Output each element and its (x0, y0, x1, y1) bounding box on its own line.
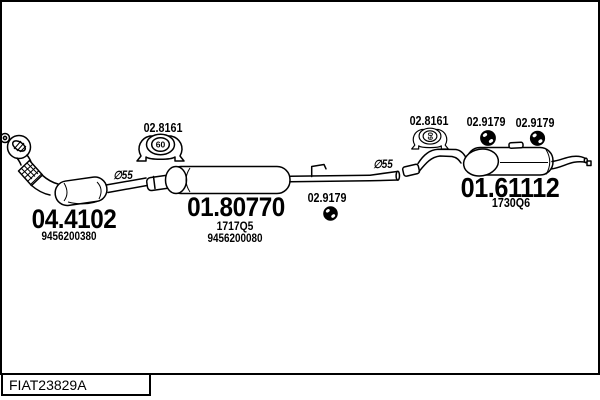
flex-pipe-icon (19, 161, 43, 186)
clamp-right-icon: 60 (412, 128, 449, 149)
hanger-mid-icon (323, 206, 338, 221)
front-pipe-oe-label: 9456200380 (41, 232, 96, 244)
mid-muffler-oe-label: 9456200080 (207, 234, 262, 246)
rear-pipe-diameter-label: ∅55 (373, 160, 393, 172)
hanger-rod-icon (312, 165, 326, 177)
mid-muffler-variant-label: 1717Q5 (217, 220, 254, 232)
muffler-bracket-icon (509, 142, 523, 148)
hanger-rear-front-icon (480, 130, 496, 146)
mid-muffler-part-label: 01.80770 (187, 194, 285, 221)
clamp-right-size-label: 60 (428, 132, 435, 140)
drawing-code-label: FIAT23829A (9, 378, 87, 392)
drawing-code-box: FIAT23829A (1, 373, 151, 396)
rear-inlet-sleeve-icon (402, 164, 420, 177)
exhaust-diagram-stage: 60 60 02.8161 ∅55 04.4102 9456200380 (0, 0, 600, 400)
hanger-rear-front-part-label: 02.9179 (467, 116, 506, 129)
flange-bolt-icon (1, 134, 10, 143)
mid-muffler-drawing (166, 167, 291, 194)
front-pipe-diameter-label: ∅55 (113, 171, 133, 183)
hanger-rear-back-icon (530, 131, 545, 146)
clamp-left-size-label: 60 (156, 140, 166, 150)
catalytic-converter-icon (54, 175, 109, 206)
clamp-right-part-label: 02.8161 (410, 115, 449, 128)
clamp-left-part-label: 02.8161 (144, 122, 183, 135)
hanger-rear-back-part-label: 02.9179 (516, 117, 555, 130)
hanger-mid-part-label: 02.9179 (307, 192, 346, 205)
front-pipe-part-label: 04.4102 (32, 206, 117, 233)
rear-muffler-variant-label: 1730Q6 (492, 197, 530, 210)
tail-pipe-icon (551, 156, 591, 169)
clamp-left-icon: 60 (137, 134, 184, 161)
